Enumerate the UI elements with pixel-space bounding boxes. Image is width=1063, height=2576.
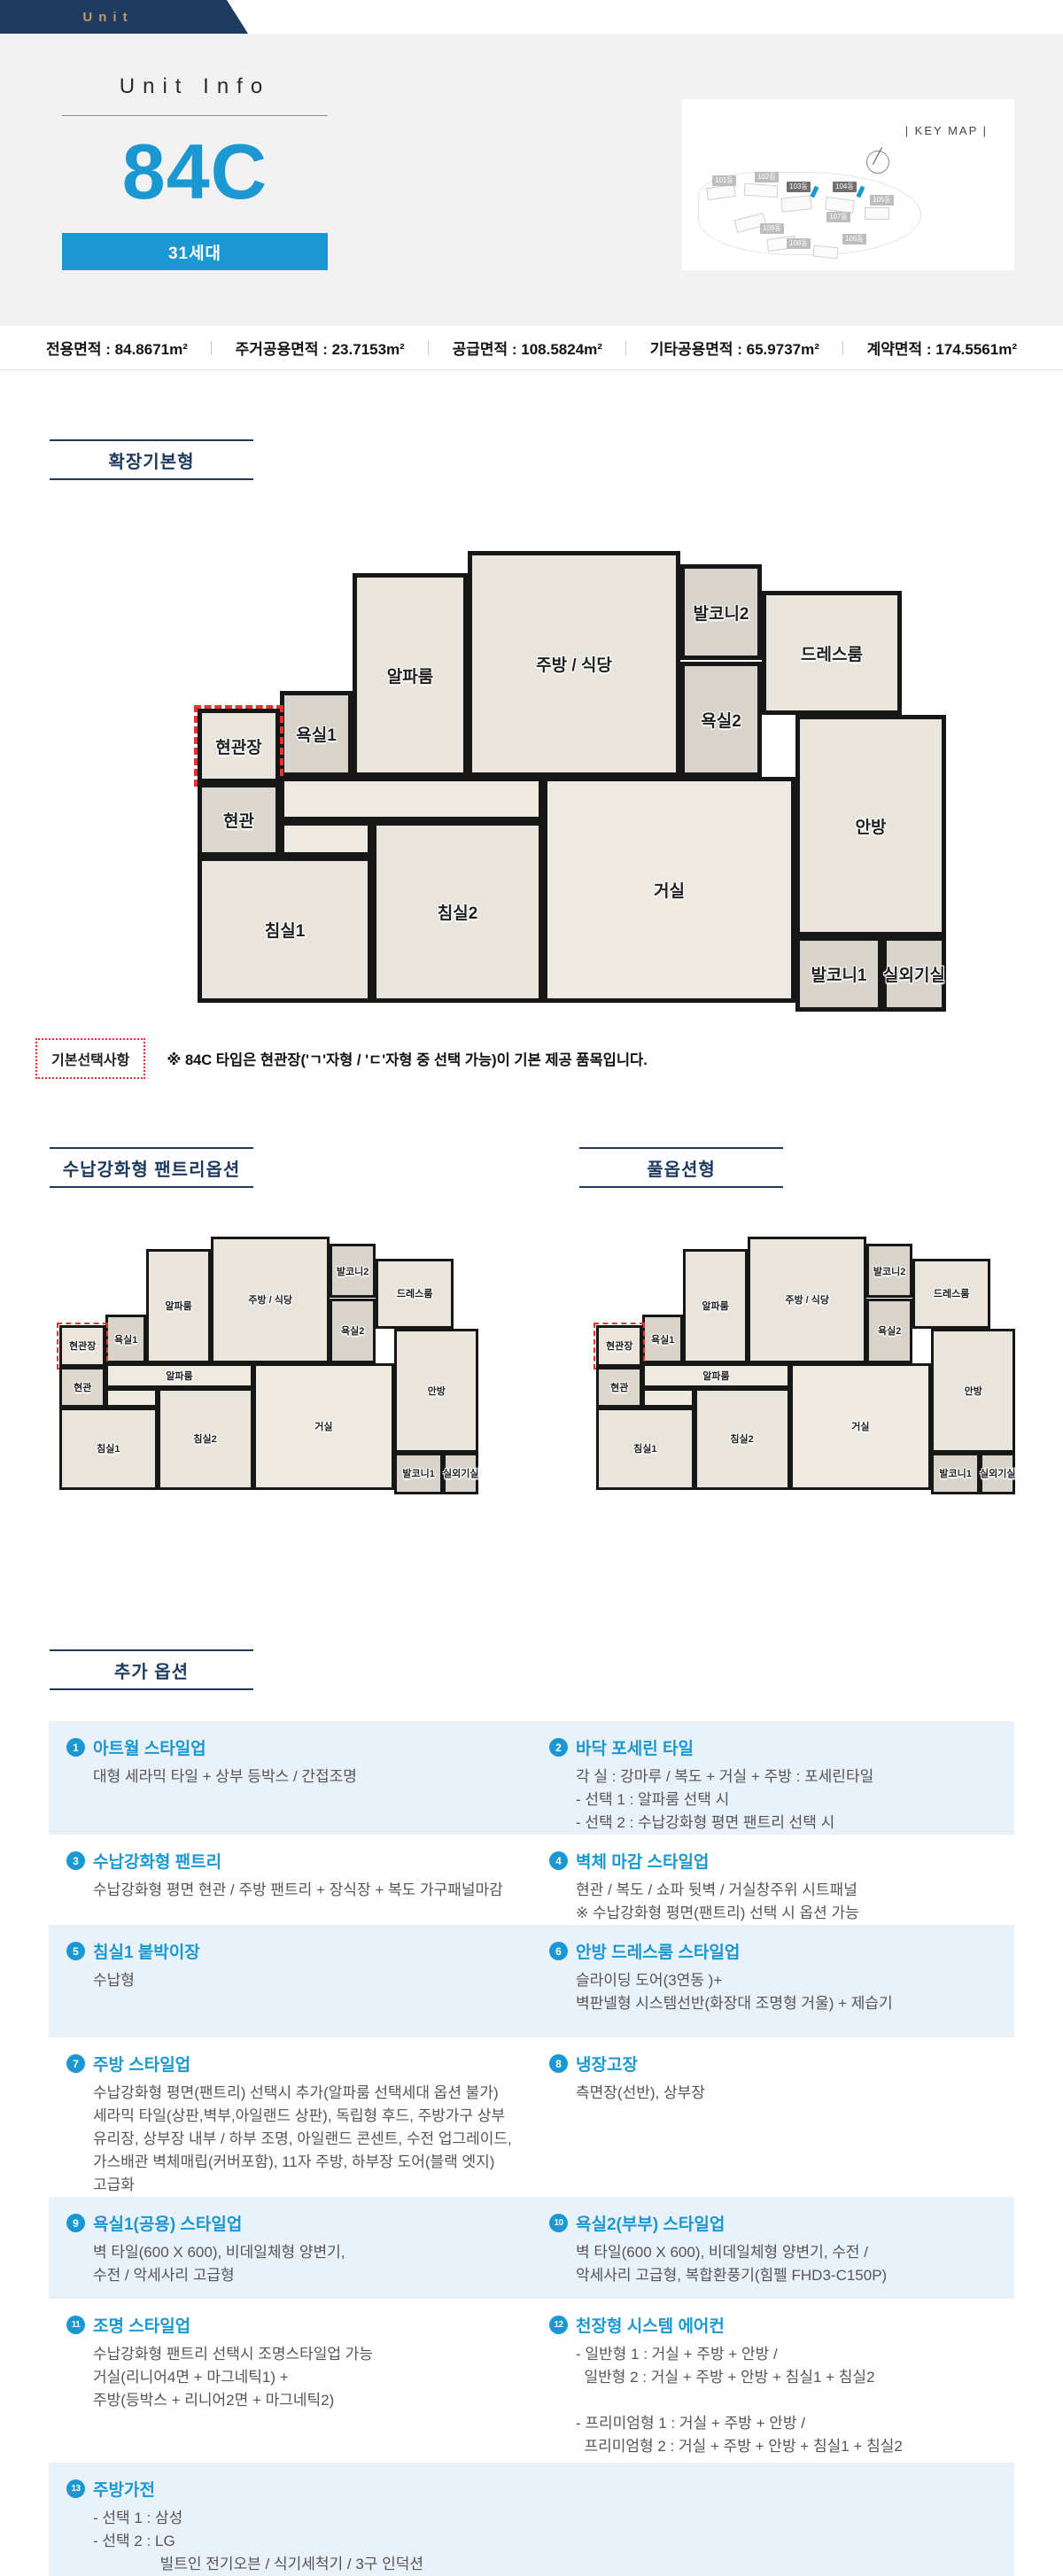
- plan-room: 거실: [790, 1363, 932, 1490]
- room-label: 발코니1: [939, 1466, 971, 1480]
- plan-room: 욕실1: [105, 1315, 146, 1362]
- section-title-pantry-option: 수납강화형 팬트리옵션: [50, 1147, 253, 1188]
- unit-type-title: 84C: [62, 133, 328, 211]
- keymap-building-badge: 105동: [870, 195, 894, 206]
- tab-unit-label: Unit: [82, 10, 133, 25]
- plan-room: [280, 777, 543, 821]
- option-description-line: 고급화: [66, 2174, 512, 2197]
- plan-room: 침실2: [372, 821, 543, 1003]
- option-description-line: 가스배관 벽체매립(커버포함), 11자 주방, 하부장 도어(블랙 엣지): [66, 2151, 512, 2174]
- plan-room: 발코니1: [795, 936, 882, 1012]
- option-title-label: 침실1 붙박이장: [93, 1939, 200, 1963]
- plan-room: 발코니2: [330, 1244, 376, 1297]
- plan-room: 욕실1: [642, 1315, 683, 1362]
- option-title: 7주방 스타일업: [66, 2052, 512, 2076]
- room-label: 안방: [428, 1384, 446, 1398]
- option-title: 6안방 드레스룸 스타일업: [549, 1939, 995, 1963]
- keymap-building-badge: 101동: [712, 175, 736, 186]
- option-description-line: 수전 / 악세사리 고급형: [66, 2264, 512, 2287]
- plan-room: 현관장: [59, 1325, 105, 1367]
- option-title-label: 수납강화형 팬트리: [93, 1849, 221, 1873]
- option-description-line: 악세사리 고급형, 복합환풍기(힘펠 FHD3-C150P): [549, 2264, 995, 2287]
- option-title-label: 벽체 마감 스타일업: [576, 1849, 709, 1873]
- header-bar: Unit: [0, 0, 1063, 34]
- options-row: 3수납강화형 팬트리수납강화형 평면 현관 / 주방 팬트리 + 장식장 + 복…: [49, 1835, 1014, 1925]
- room-label: 드레스룸: [934, 1286, 969, 1300]
- room-label: 현관: [610, 1380, 628, 1394]
- option-description-line: 수납강화형 평면 현관 / 주방 팬트리 + 장식장 + 복도 가구패널마감: [66, 1879, 512, 1902]
- option-number-icon: 11: [66, 2316, 85, 2334]
- floorplan-extended-base: 알파룸주방 / 식당발코니2욕실2드레스룸안방욕실1현관장현관거실침실1침실2발…: [158, 551, 946, 1012]
- room-label: 드레스룸: [397, 1286, 432, 1300]
- option-title: 12천장형 시스템 에어컨: [549, 2313, 995, 2337]
- option-description-line: ※ 수납강화형 평면(팬트리) 선택 시 옵션 가능: [549, 1902, 995, 1925]
- option-number-icon: 2: [549, 1738, 568, 1757]
- option-description-line: [549, 2389, 995, 2412]
- section-title-extended-base: 확장기본형: [50, 439, 253, 480]
- option-description-line: 빌트인 전기오븐 / 식기세척기 / 3구 인덕션: [66, 2553, 512, 2576]
- plan-room: 침실1: [198, 857, 372, 1003]
- room-label: 거실: [851, 1419, 869, 1433]
- area-item: 계약면적 : 174.5561m²: [867, 337, 1017, 359]
- options-row: 9욕실1(공용) 스타일업벽 타일(600 X 600), 비데일체형 양변기,…: [49, 2197, 1014, 2299]
- option-description-line: 주방(등박스 + 리니어2면 + 마그네틱2): [66, 2389, 512, 2412]
- option-description-line: 일반형 2 : 거실 + 주방 + 안방 + 침실1 + 침실2: [549, 2366, 995, 2389]
- room-label: 실외기실: [443, 1466, 478, 1480]
- room-label: 발코니1: [402, 1466, 434, 1480]
- area-separator: [428, 341, 429, 355]
- option-description-line: 대형 세라믹 타일 + 상부 등박스 / 간접조명: [66, 1765, 512, 1788]
- plan-room: 욕실2: [680, 662, 762, 777]
- plan-room: 침실2: [158, 1388, 253, 1490]
- plan-room: 안방: [394, 1329, 478, 1453]
- option-description-line: 수납강화형 팬트리 선택시 조명스타일업 가능: [66, 2343, 512, 2366]
- plan-room: 안방: [931, 1329, 1015, 1453]
- option-item: 8냉장고장측면장(선반), 상부장: [531, 2037, 1014, 2197]
- room-label: 침실1: [633, 1441, 656, 1455]
- plan-room: 실외기실: [980, 1453, 1015, 1495]
- option-title: 8냉장고장: [549, 2052, 995, 2076]
- room-label: 알파룸: [165, 1299, 191, 1313]
- option-description-line: 현관 / 복도 / 쇼파 뒷벽 / 거실창주위 시트패널: [549, 1879, 995, 1902]
- option-description-line: 거실(리니어4면 + 마그네틱1) +: [66, 2366, 512, 2389]
- plan-room: 침실1: [596, 1408, 694, 1489]
- room-label: 실외기실: [883, 962, 945, 986]
- option-description-line: 세라믹 타일(상판,벽부,아일랜드 상판), 독립형 후드, 주방가구 상부: [66, 2105, 512, 2128]
- options-row: 5침실1 붙박이장수납형6안방 드레스룸 스타일업슬라이딩 도어(3연동 )+벽…: [49, 1925, 1014, 2037]
- unit-info-section: Unit Info 84C 31세대 | KEY MAP | 101동102동1…: [0, 34, 1063, 326]
- plan-room: 드레스룸: [376, 1259, 454, 1328]
- option-title-label: 주방 스타일업: [93, 2052, 190, 2076]
- area-item: 공급면적 : 108.5824m²: [453, 337, 602, 359]
- option-item: 13주방가전- 선택 1 : 삼성- 선택 2 : LG 빌트인 전기오븐 / …: [49, 2463, 531, 2576]
- option-title-label: 욕실2(부부) 스타일업: [576, 2211, 725, 2235]
- option-number-icon: 4: [549, 1851, 568, 1870]
- room-label: 욕실1: [114, 1332, 137, 1346]
- option-description-line: 벽 타일(600 X 600), 비데일체형 양변기, 수전 /: [549, 2241, 995, 2264]
- section-title-label: 확장기본형: [109, 447, 195, 473]
- option-number-icon: 9: [66, 2214, 85, 2232]
- option-description-line: - 프리미엄형 1 : 거실 + 주방 + 안방 /: [549, 2412, 995, 2435]
- section-title-label: 수납강화형 팬트리옵션: [63, 1155, 241, 1181]
- room-label: 거실: [654, 878, 685, 902]
- keymap-label: | KEY MAP |: [905, 124, 988, 137]
- option-description-line: 슬라이딩 도어(3연동 )+: [549, 1969, 995, 1992]
- option-description-line: 각 실 : 강마루 / 복도 + 거실 + 주방 : 포세린타일: [549, 1765, 995, 1788]
- option-item: 11조명 스타일업수납강화형 팬트리 선택시 조명스타일업 가능거실(리니어4면…: [49, 2299, 531, 2463]
- extra-options-list: 1아트월 스타일업대형 세라믹 타일 + 상부 등박스 / 간접조명2바닥 포세…: [49, 1721, 1014, 2576]
- option-description-line: - 선택 2 : LG: [66, 2530, 512, 2553]
- options-row: 11조명 스타일업수납강화형 팬트리 선택시 조명스타일업 가능거실(리니어4면…: [49, 2299, 1014, 2463]
- floorplan-full-option: 알파룸주방 / 식당발코니2욕실2드레스룸안방욕실1현관장현관알파룸거실침실1침…: [574, 1237, 1015, 1494]
- option-description-line: 프리미엄형 2 : 거실 + 주방 + 안방 + 침실1 + 침실2: [549, 2435, 995, 2458]
- room-label: 침실1: [97, 1441, 120, 1455]
- option-item: 5침실1 붙박이장수납형: [49, 1925, 531, 2037]
- plan-room: 실외기실: [443, 1453, 478, 1495]
- plan-room: 알파룸: [105, 1363, 252, 1388]
- plan-room: 현관장: [596, 1325, 642, 1367]
- plan-room: 드레스룸: [912, 1259, 990, 1328]
- plan-room: 현관: [596, 1367, 642, 1408]
- option-number-icon: 10: [549, 2214, 568, 2232]
- option-number-icon: 7: [66, 2054, 85, 2073]
- plan-room: 드레스룸: [762, 591, 902, 715]
- area-separator: [842, 341, 843, 355]
- room-label: 침실2: [438, 900, 478, 924]
- area-separator: [211, 341, 212, 355]
- room-label: 알파룸: [702, 1369, 729, 1383]
- option-title: 1아트월 스타일업: [66, 1735, 512, 1759]
- option-title: 9욕실1(공용) 스타일업: [66, 2211, 512, 2235]
- plan-room: 실외기실: [882, 936, 946, 1012]
- option-description-line: 수납형: [66, 1969, 512, 1992]
- plan-room: 발코니2: [680, 564, 762, 660]
- room-label: 발코니2: [337, 1264, 369, 1278]
- section-title-label: 추가 옵션: [114, 1657, 189, 1683]
- room-label: 거실: [314, 1419, 332, 1433]
- option-title-label: 아트월 스타일업: [93, 1735, 206, 1759]
- option-number-icon: 8: [549, 2054, 568, 2073]
- plan-room: [105, 1388, 157, 1408]
- plan-room: 현관: [59, 1367, 105, 1408]
- plan-room: 거실: [253, 1363, 395, 1490]
- base-selection-badge: 기본선택사항: [35, 1038, 145, 1079]
- keymap-building-badge: 106동: [842, 234, 866, 244]
- option-description-line: 수납강화형 평면(팬트리) 선택시 추가(알파룸 선택세대 옵션 불가): [66, 2082, 512, 2105]
- compass-icon: [866, 151, 889, 174]
- plan-room: 현관: [198, 783, 280, 857]
- option-description-line: 벽판넬형 시스템선반(화장대 조명형 거울) + 제습기: [549, 1992, 995, 2015]
- option-number-icon: 1: [66, 1738, 85, 1757]
- option-number-icon: 12: [549, 2316, 568, 2334]
- room-label: 현관장: [215, 734, 261, 758]
- floorplan-pantry-option: 알파룸주방 / 식당발코니2욕실2드레스룸안방욕실1현관장현관알파룸거실침실1침…: [37, 1237, 478, 1494]
- option-title: 13주방가전: [66, 2477, 512, 2501]
- room-label: 주방 / 식당: [248, 1292, 292, 1307]
- option-description-line: - 선택 1 : 알파룸 선택 시: [549, 1788, 995, 1812]
- room-label: 침실2: [730, 1432, 753, 1446]
- room-label: 안방: [965, 1384, 982, 1398]
- room-label: 침실2: [193, 1432, 216, 1446]
- option-description-line: - 선택 1 : 삼성: [66, 2507, 512, 2530]
- plan-room: 현관장: [198, 709, 280, 783]
- room-label: 현관장: [69, 1338, 96, 1353]
- room-label: 발코니2: [693, 601, 749, 625]
- plan-room: 욕실2: [866, 1299, 912, 1363]
- plan-room: 주방 / 식당: [211, 1237, 330, 1363]
- option-title: 10욕실2(부부) 스타일업: [549, 2211, 995, 2235]
- option-title-label: 천장형 시스템 에어컨: [576, 2313, 725, 2337]
- plan-room: 주방 / 식당: [468, 551, 680, 777]
- option-number-icon: 6: [549, 1942, 568, 1960]
- option-item: 9욕실1(공용) 스타일업벽 타일(600 X 600), 비데일체형 양변기,…: [49, 2197, 531, 2299]
- plan-room: [280, 821, 372, 857]
- option-title: 3수납강화형 팬트리: [66, 1849, 512, 1873]
- keymap-panel: | KEY MAP | 101동102동103동104동105동107동109동…: [682, 99, 1014, 270]
- keymap-building-badge: 107동: [826, 212, 850, 222]
- keymap-building-shape: [812, 245, 838, 260]
- plan-room: 알파룸: [146, 1249, 211, 1363]
- plan-room: 알파룸: [642, 1363, 789, 1388]
- option-title-label: 안방 드레스룸 스타일업: [576, 1939, 740, 1963]
- keymap-building-badge: 104동: [833, 182, 857, 192]
- keymap-building-shape: [865, 207, 889, 220]
- area-summary-bar: 전용면적 : 84.8671m²주거공용면적 : 23.7153m²공급면적 :…: [0, 326, 1063, 370]
- room-label: 발코니1: [811, 962, 866, 986]
- section-title-full-option: 풀옵션형: [579, 1147, 783, 1188]
- plan-room: 알파룸: [353, 573, 468, 777]
- option-number-icon: 5: [66, 1942, 85, 1960]
- options-row: 1아트월 스타일업대형 세라믹 타일 + 상부 등박스 / 간접조명2바닥 포세…: [49, 1721, 1014, 1835]
- unit-info-heading: Unit Info: [62, 74, 328, 99]
- room-label: 알파룸: [166, 1369, 192, 1383]
- room-label: 주방 / 식당: [536, 652, 612, 676]
- option-title: 4벽체 마감 스타일업: [549, 1849, 995, 1873]
- options-row: 13주방가전- 선택 1 : 삼성- 선택 2 : LG 빌트인 전기오븐 / …: [49, 2463, 1014, 2576]
- option-description-line: 벽 타일(600 X 600), 비데일체형 양변기,: [66, 2241, 512, 2264]
- option-number-icon: 3: [66, 1851, 85, 1870]
- area-item: 전용면적 : 84.8671m²: [46, 337, 188, 359]
- room-label: 욕실1: [296, 722, 337, 746]
- room-label: 현관장: [606, 1338, 632, 1353]
- option-title: 2바닥 포세린 타일: [549, 1735, 995, 1759]
- option-item: 7주방 스타일업수납강화형 평면(팬트리) 선택시 추가(알파룸 선택세대 옵션…: [49, 2037, 531, 2197]
- plan-room: 발코니1: [931, 1453, 980, 1495]
- plan-room: 욕실1: [280, 691, 353, 777]
- plan-room: 욕실2: [330, 1299, 376, 1363]
- area-item: 기타공용면적 : 65.9737m²: [650, 337, 819, 359]
- option-description-line: 유리장, 상부장 내부 / 하부 조명, 아일랜드 콘센트, 수전 업그레이드,: [66, 2128, 512, 2151]
- keymap-building-shape: [744, 183, 779, 198]
- keymap-building-badge: 103동: [787, 182, 811, 192]
- plan-room: 발코니2: [866, 1244, 912, 1297]
- option-title-label: 냉장고장: [576, 2052, 638, 2076]
- keymap-building-badge: 102동: [755, 172, 779, 182]
- base-selection-text: ※ 84C 타입은 현관장('ㄱ'자형 / 'ㄷ'자형 중 선택 가능)이 기본…: [167, 1048, 647, 1069]
- option-description-line: 측면장(선반), 상부장: [549, 2082, 995, 2105]
- unit-info-underline: [62, 115, 328, 116]
- base-selection-note: 기본선택사항 ※ 84C 타입은 현관장('ㄱ'자형 / 'ㄷ'자형 중 선택 …: [35, 1038, 648, 1079]
- room-label: 욕실2: [341, 1323, 364, 1338]
- room-label: 발코니2: [873, 1264, 905, 1278]
- options-row: 7주방 스타일업수납강화형 평면(팬트리) 선택시 추가(알파룸 선택세대 옵션…: [49, 2037, 1014, 2197]
- option-title-label: 조명 스타일업: [93, 2313, 190, 2337]
- option-title-label: 바닥 포세린 타일: [576, 1735, 694, 1759]
- room-label: 안방: [856, 814, 887, 838]
- plan-room: 안방: [795, 715, 946, 936]
- option-item: 6안방 드레스룸 스타일업슬라이딩 도어(3연동 )+벽판넬형 시스템선반(화장…: [531, 1925, 1014, 2037]
- plan-room: [642, 1388, 694, 1408]
- plan-room: 침실2: [694, 1388, 790, 1490]
- option-item: 2바닥 포세린 타일각 실 : 강마루 / 복도 + 거실 + 주방 : 포세린…: [531, 1721, 1014, 1835]
- plan-room: 발코니1: [394, 1453, 443, 1495]
- area-separator: [625, 341, 626, 355]
- section-title-extra-options: 추가 옵션: [50, 1649, 253, 1690]
- room-label: 욕실2: [878, 1323, 901, 1338]
- room-label: 침실1: [265, 918, 306, 942]
- option-item: 4벽체 마감 스타일업현관 / 복도 / 쇼파 뒷벽 / 거실창주위 시트패널※…: [531, 1835, 1014, 1925]
- room-label: 드레스룸: [801, 641, 863, 665]
- option-item: 1아트월 스타일업대형 세라믹 타일 + 상부 등박스 / 간접조명: [49, 1721, 531, 1835]
- option-description-line: - 선택 2 : 수납강화형 평면 팬트리 선택 시: [549, 1812, 995, 1835]
- option-title-label: 욕실1(공용) 스타일업: [93, 2211, 242, 2235]
- keymap-building-badge: 109동: [760, 223, 784, 234]
- area-item: 주거공용면적 : 23.7153m²: [236, 337, 405, 359]
- tab-unit[interactable]: Unit: [0, 0, 248, 34]
- plan-room: 알파룸: [683, 1249, 748, 1363]
- option-item: 10욕실2(부부) 스타일업벽 타일(600 X 600), 비데일체형 양변기…: [531, 2197, 1014, 2299]
- option-item: 12천장형 시스템 에어컨- 일반형 1 : 거실 + 주방 + 안방 / 일반…: [531, 2299, 1014, 2463]
- room-label: 주방 / 식당: [785, 1292, 829, 1307]
- option-title: 5침실1 붙박이장: [66, 1939, 512, 1963]
- keymap-building-badge: 108동: [787, 238, 811, 249]
- room-label: 알파룸: [702, 1299, 728, 1313]
- households-badge: 31세대: [62, 233, 328, 270]
- room-label: 욕실2: [701, 708, 741, 732]
- option-title-label: 주방가전: [93, 2477, 155, 2501]
- plan-room: 침실1: [59, 1408, 157, 1489]
- option-title: 11조명 스타일업: [66, 2313, 512, 2337]
- room-label: 현관: [223, 808, 254, 832]
- plan-room: 거실: [543, 777, 795, 1003]
- room-label: 알파룸: [387, 663, 433, 687]
- option-number-icon: 13: [66, 2479, 85, 2498]
- option-description-line: - 일반형 1 : 거실 + 주방 + 안방 /: [549, 2343, 995, 2366]
- room-label: 실외기실: [980, 1466, 1015, 1480]
- option-item: 3수납강화형 팬트리수납강화형 평면 현관 / 주방 팬트리 + 장식장 + 복…: [49, 1835, 531, 1925]
- room-label: 욕실1: [651, 1332, 674, 1346]
- plan-room: 주방 / 식당: [748, 1237, 866, 1363]
- room-label: 현관: [74, 1380, 91, 1394]
- section-title-label: 풀옵션형: [647, 1155, 716, 1181]
